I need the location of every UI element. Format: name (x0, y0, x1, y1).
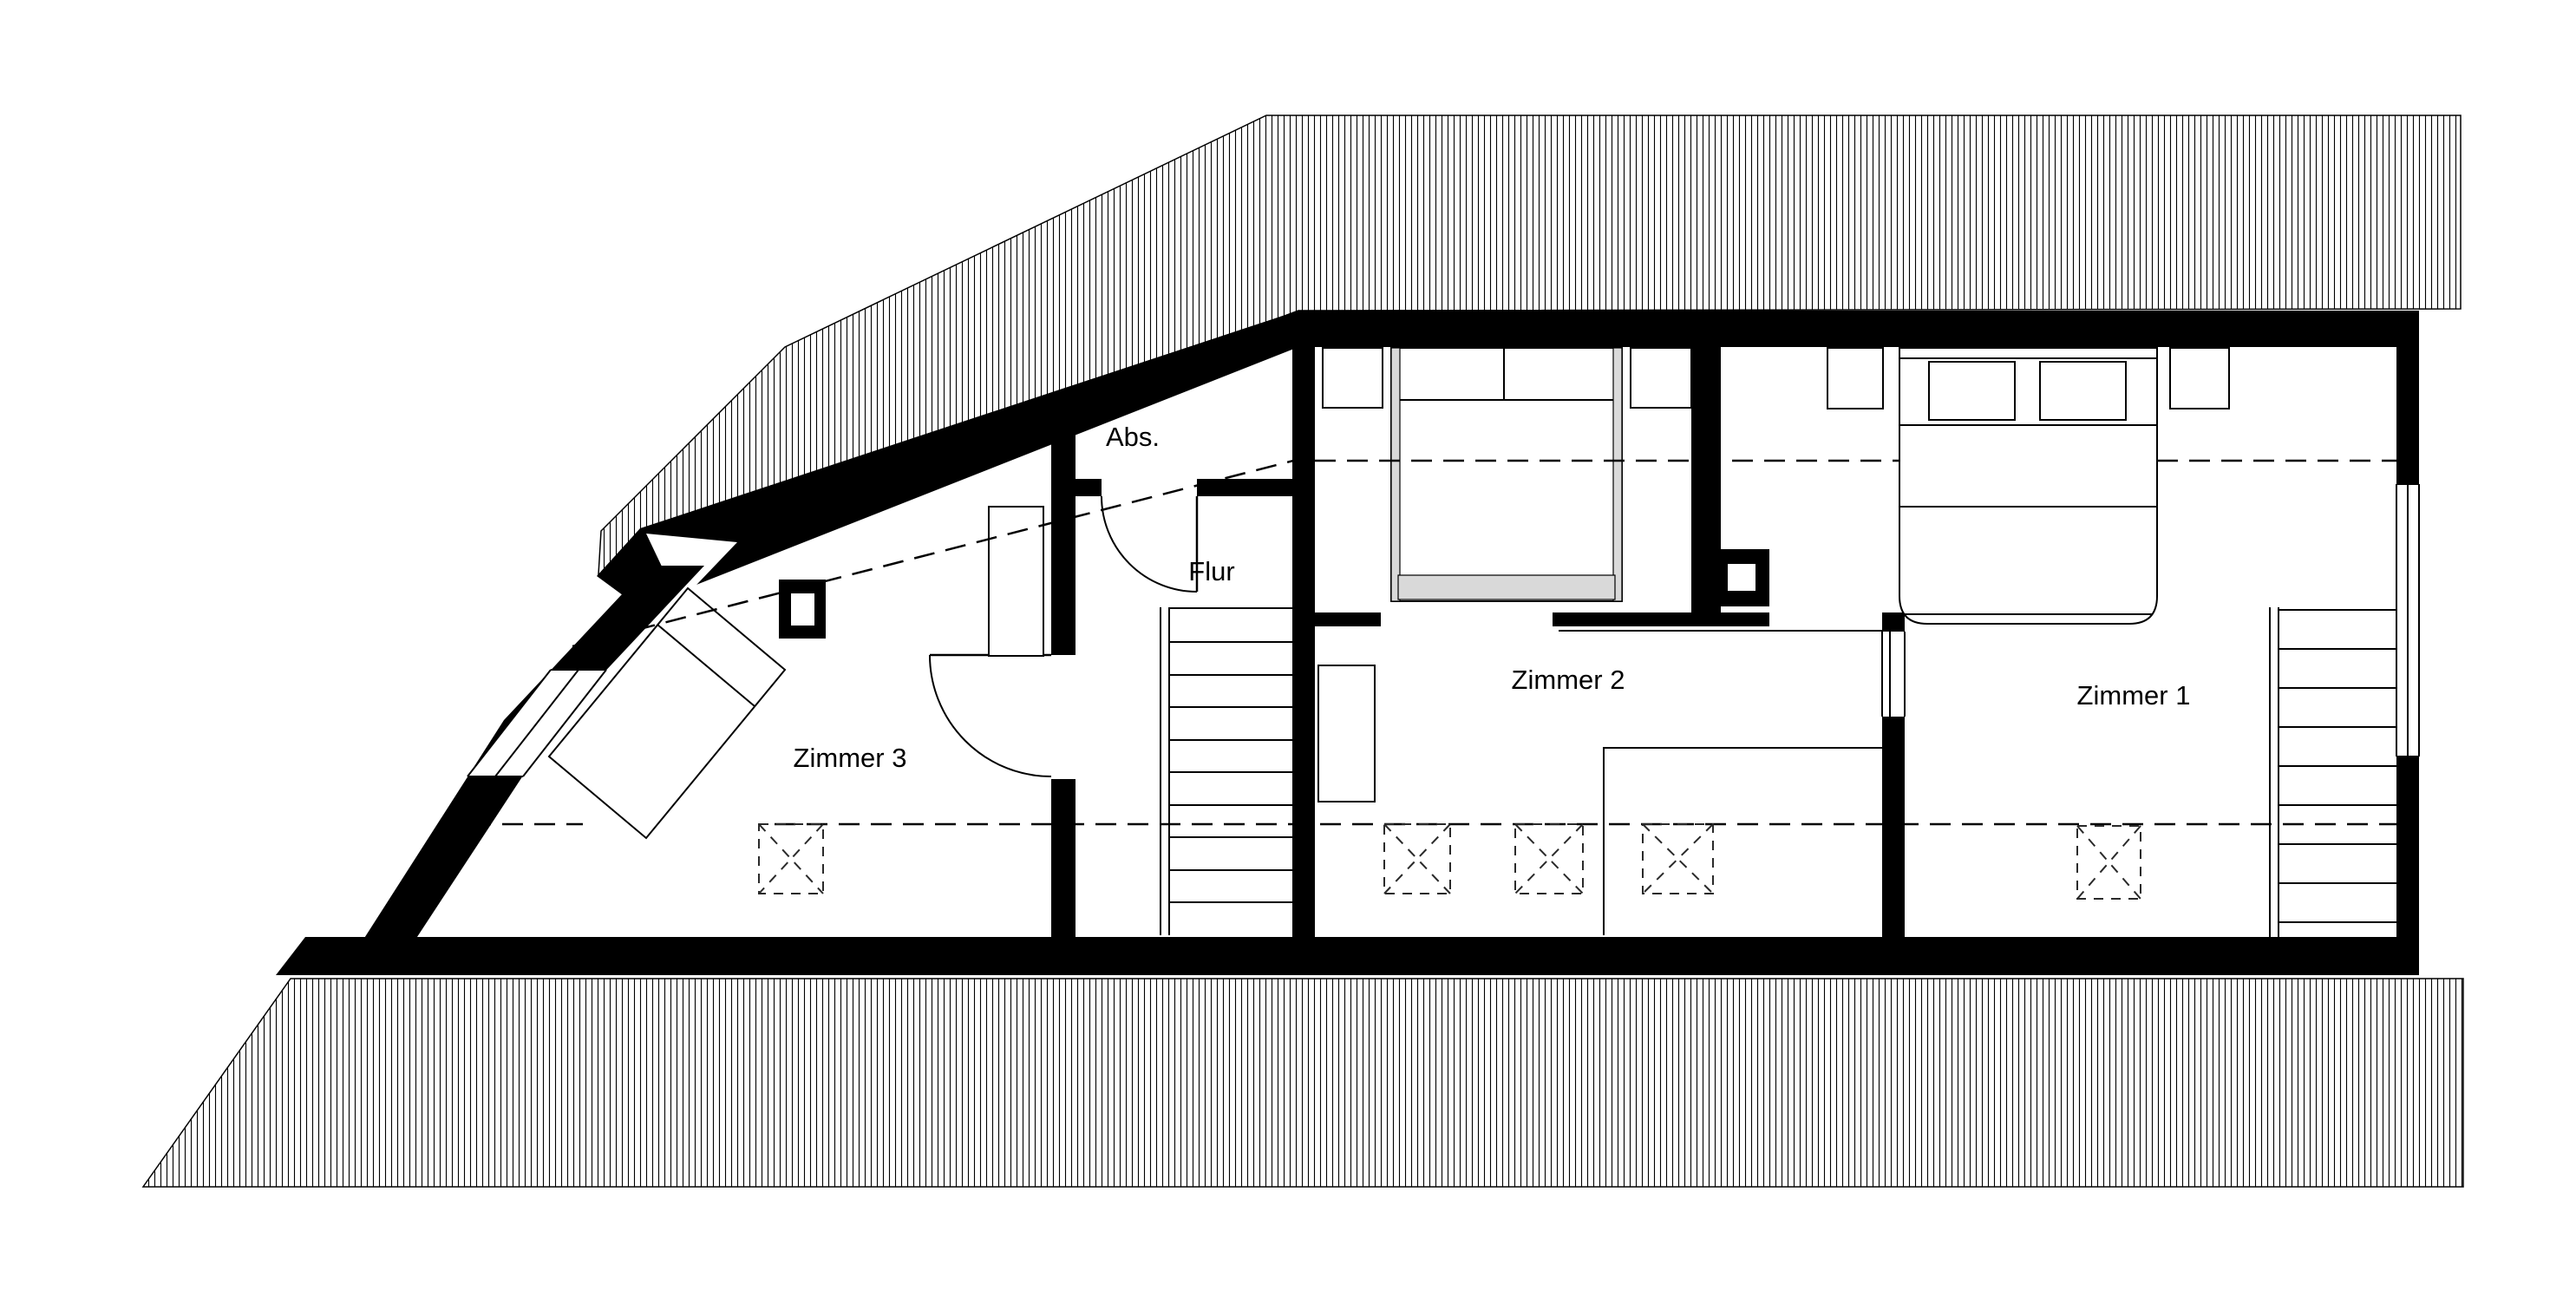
skylight-symbol (1384, 824, 1450, 894)
wardrobe-zimmer2 (1318, 665, 1375, 802)
room-label-abs: Abs. (1106, 422, 1160, 452)
roof-overhang-hatch-bottom (143, 979, 2463, 1187)
wall-mid-segment-a (1315, 612, 1381, 626)
nightstand-zimmer1-right (2170, 348, 2229, 409)
wall-flur-zimmer2 (1292, 347, 1315, 937)
nightstand-zimmer2-left (1323, 348, 1383, 408)
floor-plan-drawing: Abs. Flur Zimmer 3 Zimmer 2 Zimmer 1 (0, 0, 2576, 1297)
room-label-flur: Flur (1188, 556, 1234, 586)
skylight-symbol (1643, 824, 1713, 894)
wall-zimmer3-flur-lower (1051, 779, 1076, 937)
skylight-symbol (2077, 826, 2141, 899)
chimney-icon-zimmer3 (779, 580, 826, 639)
bed-zimmer3 (549, 588, 785, 838)
chimney-icon-zimmer1 (1714, 549, 1769, 606)
pillow (2040, 362, 2126, 420)
nightstand-zimmer2-right (1631, 348, 1691, 408)
pillow (1929, 362, 2015, 420)
room-label-zimmer1: Zimmer 1 (2077, 680, 2191, 711)
door-reveal-zimmer1 (1882, 632, 1905, 717)
wall-top (1298, 311, 2419, 347)
wall-zimmer1-zimmer2 (1882, 717, 1905, 937)
cupboard-zimmer3 (989, 507, 1043, 656)
wall-right-upper (2396, 347, 2419, 484)
wall-zimmer3-flur-upper (1051, 432, 1076, 655)
door-swing-zimmer3 (930, 655, 1051, 776)
staircase-right (2270, 607, 2396, 937)
window-right-wall (2396, 484, 2419, 757)
wall-abs-flur-left (1076, 479, 1102, 496)
bed-zimmer1 (1899, 348, 2157, 624)
nightstand-zimmer1-left (1827, 348, 1883, 409)
room-label-zimmer2: Zimmer 2 (1512, 665, 1625, 695)
wall-bottom (276, 937, 2419, 975)
floor-plan-page: Abs. Flur Zimmer 3 Zimmer 2 Zimmer 1 (0, 0, 2576, 1297)
staircase-main (1161, 607, 1292, 935)
door-swing-abs (1102, 496, 1197, 592)
skylight-symbol (759, 824, 823, 894)
bed-zimmer2 (1391, 348, 1622, 601)
wall-mid-stub (1882, 612, 1905, 632)
skylight-symbol (1515, 824, 1583, 894)
wall-mid-segment-b (1553, 612, 1769, 626)
room-label-zimmer3: Zimmer 3 (794, 743, 907, 773)
